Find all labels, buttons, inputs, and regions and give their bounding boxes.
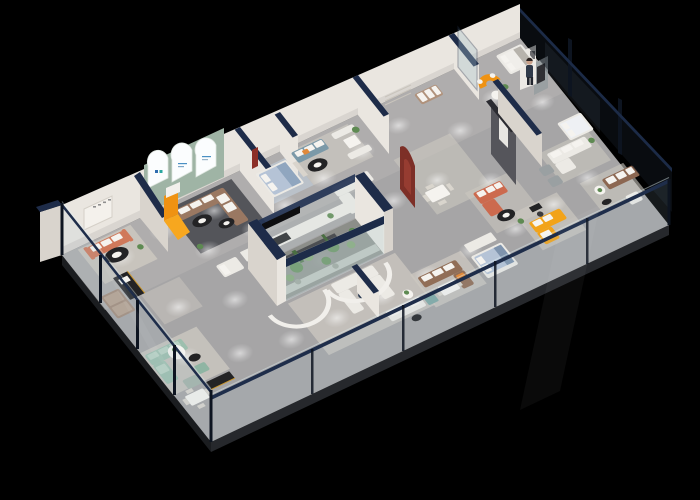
person-figure: [526, 58, 533, 85]
showroom-3d-render: [0, 0, 700, 500]
glass-corner-post: [61, 203, 64, 255]
red-niche: [252, 147, 258, 169]
glass-corner-post: [210, 390, 213, 442]
showroom-render-stage: [0, 0, 700, 500]
glass-corner-post: [668, 179, 671, 225]
